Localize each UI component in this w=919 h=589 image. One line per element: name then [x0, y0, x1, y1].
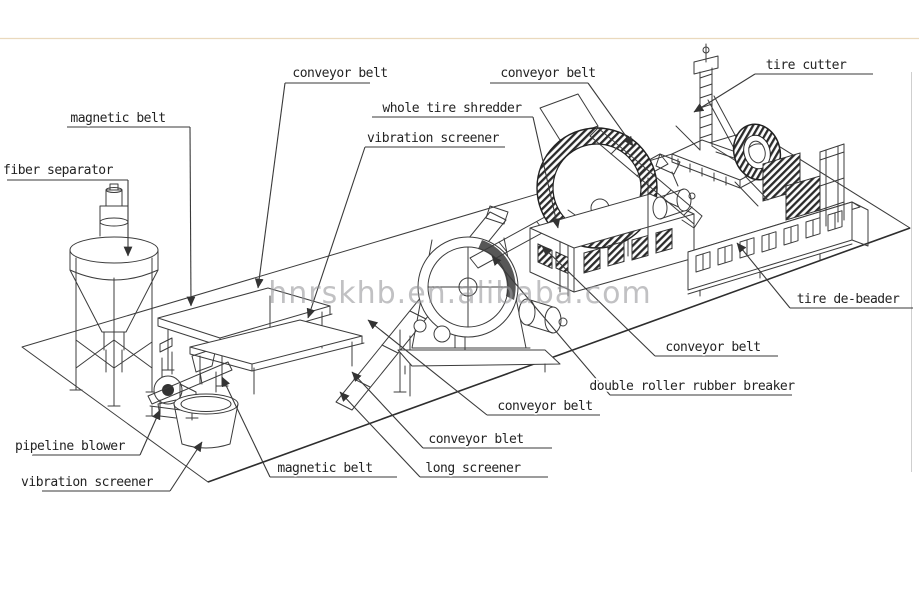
- label-pipeline-blower: pipeline blower: [15, 439, 140, 455]
- label-text: conveyor belt: [292, 66, 387, 81]
- label-text: conveyor belt: [665, 340, 760, 355]
- label-vibration-screener-lower: vibration screener: [21, 475, 170, 491]
- label-tire-cutter: tire cutter: [755, 58, 873, 74]
- label-double-roller-rubber-breaker: double roller rubber breaker: [589, 379, 795, 395]
- label-conveyor-blet: conveyor blet: [423, 432, 552, 448]
- label-text: conveyor belt: [497, 399, 592, 414]
- label-text: conveyor belt: [500, 66, 595, 81]
- label-text: long screener: [425, 461, 521, 476]
- fiber-separator-drawing: [70, 184, 158, 406]
- label-text: double roller rubber breaker: [589, 379, 795, 394]
- label-text: vibration screener: [367, 131, 500, 146]
- watermark-text: hnrskhb.en.alibaba.com: [268, 276, 651, 311]
- label-fiber-separator: fiber separator: [3, 163, 128, 180]
- label-text: vibration screener: [21, 475, 154, 490]
- label-text: whole tire shredder: [382, 101, 522, 116]
- label-text: fiber separator: [3, 163, 114, 178]
- label-text: tire cutter: [766, 58, 847, 73]
- label-magnetic-belt-lower: magnetic belt: [270, 461, 397, 477]
- diagram-canvas: conveyor belt magnetic belt fiber separa…: [0, 0, 919, 589]
- label-conveyor-belt-lower-mid: conveyor belt: [487, 399, 600, 415]
- whole-tire-shredder-drawing: [530, 94, 695, 292]
- label-vibration-screener-mid: vibration screener: [365, 131, 505, 147]
- label-conveyor-belt-top-mid: conveyor belt: [490, 66, 596, 83]
- label-text: magnetic belt: [277, 461, 372, 476]
- label-whole-tire-shredder: whole tire shredder: [372, 101, 533, 117]
- label-text: tire de-beader: [797, 292, 900, 307]
- label-tire-de-beader: tire de-beader: [790, 292, 913, 308]
- label-magnetic-belt-upper: magnetic belt: [67, 111, 190, 127]
- label-text: pipeline blower: [15, 439, 126, 454]
- label-text: conveyor blet: [428, 432, 523, 447]
- label-long-screener: long screener: [420, 461, 548, 477]
- label-conveyor-belt-top-left: conveyor belt: [285, 66, 388, 83]
- diagram-page: conveyor belt magnetic belt fiber separa…: [0, 0, 919, 589]
- label-conveyor-belt-right: conveyor belt: [655, 340, 778, 356]
- label-text: magnetic belt: [70, 111, 165, 126]
